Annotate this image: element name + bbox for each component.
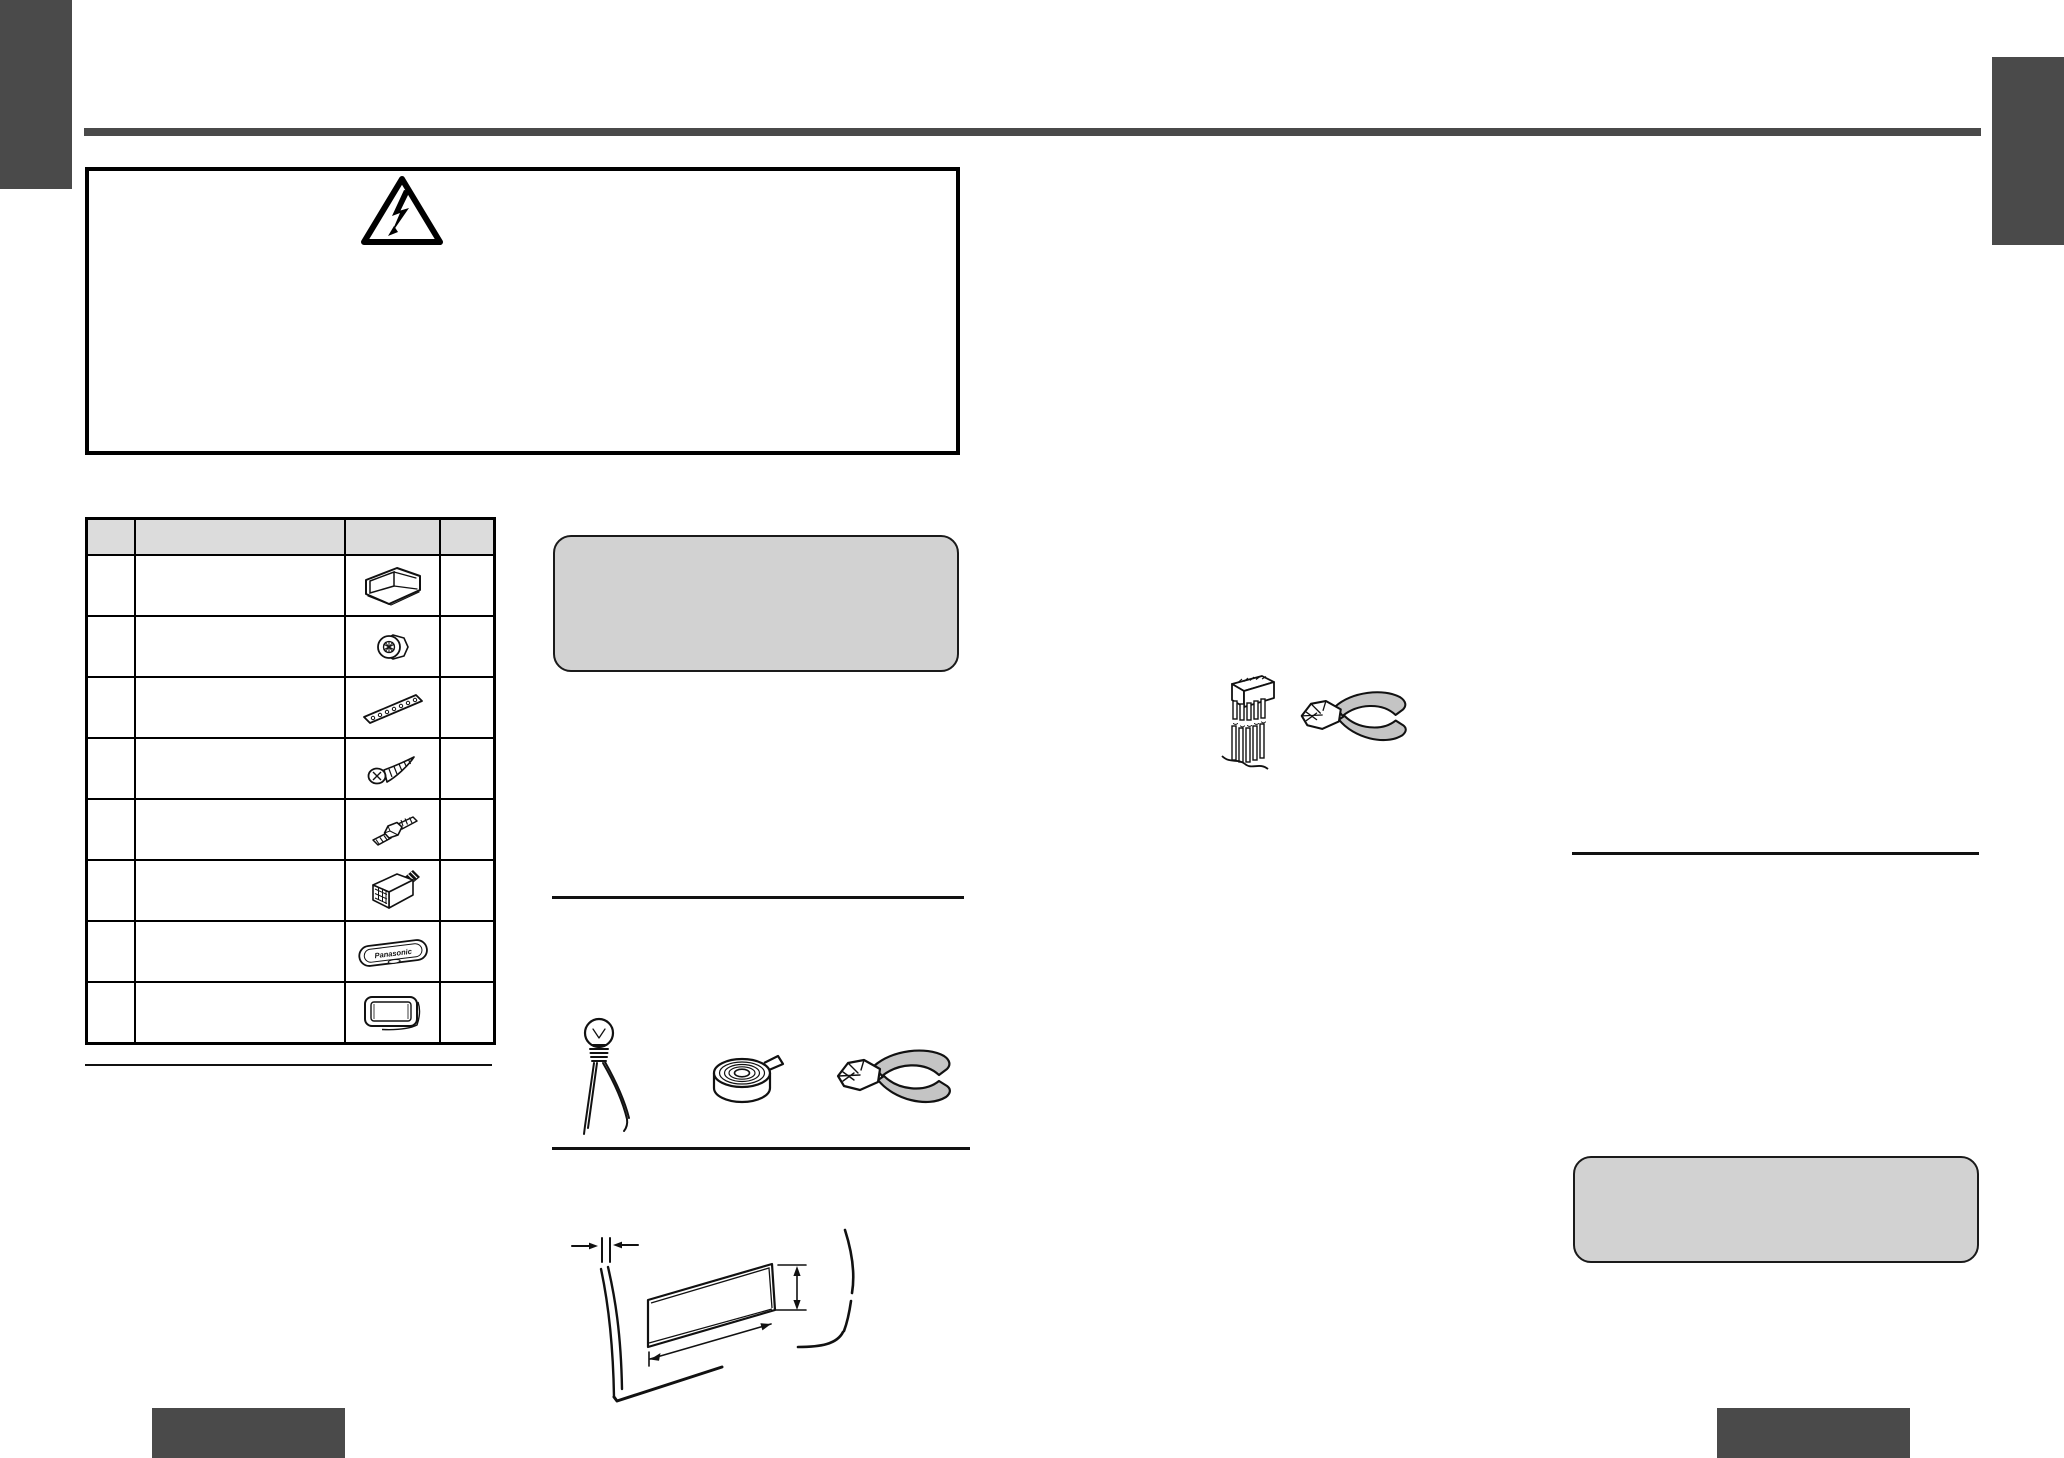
cell-diagram [345,555,440,616]
cell-qty [440,921,495,982]
cell-qty [440,799,495,860]
side-cutters-icon [834,1046,954,1112]
cell-number [87,738,136,799]
cell-qty [440,982,495,1044]
radio-opening [648,1264,775,1347]
remote-control-icon: Panasonic [355,934,431,970]
header-col-number [87,519,136,556]
cell-number [87,921,136,982]
power-connector-icon [361,867,425,915]
left-edge-tab [0,0,72,189]
mounting-collar-icon [361,565,425,607]
header-col-name [135,519,345,556]
hex-nut-icon [373,631,413,663]
tools-section-bottom-rule [552,1147,970,1150]
wire-cut-figure [1218,672,1418,784]
cell-name [135,982,345,1044]
cell-number [87,799,136,860]
cell-number [87,616,136,677]
cell-diagram [345,677,440,738]
header-col-qty [440,519,495,556]
cell-number [87,982,136,1044]
cell-qty [440,555,495,616]
bottom-left-page-tab [152,1408,345,1458]
cell-diagram [345,982,440,1044]
cell-qty [440,616,495,677]
tapping-screw-icon [365,751,421,787]
cell-name [135,677,345,738]
cell-qty [440,738,495,799]
cell-qty [440,860,495,921]
tools-section-top-rule [552,896,964,899]
cell-name [135,555,345,616]
cell-name [135,738,345,799]
note-panel-top [553,535,959,672]
note-panel-bottom [1573,1156,1979,1263]
right-edge-tab [1992,57,2064,245]
table-row: Panasonic [87,921,495,982]
trim-frame-icon [362,992,424,1034]
cell-number [87,860,136,921]
table-header-row [87,519,495,556]
high-voltage-icon [358,174,446,248]
test-lamp-icon [572,1016,644,1146]
bottom-right-page-tab [1717,1408,1910,1458]
insulating-tape-icon [706,1048,786,1110]
table-row [87,860,495,921]
cell-diagram [345,799,440,860]
table-row [87,738,495,799]
mounting-strap-icon [361,690,425,726]
table-row [87,982,495,1044]
table-row [87,799,495,860]
cell-diagram [345,616,440,677]
table-bottom-rule [85,1064,492,1066]
table-row [87,616,495,677]
cell-name [135,616,345,677]
caution-section-rule [1572,852,1979,855]
parts-table: Panasonic [85,517,496,1045]
cell-diagram: Panasonic [345,921,440,982]
thickness-dimension-arrow [572,1238,638,1262]
cell-number [87,677,136,738]
height-dimension-arrow [776,1265,806,1310]
cell-diagram [345,738,440,799]
header-col-diagram [345,519,440,556]
cell-number [87,555,136,616]
cell-name [135,860,345,921]
cell-name [135,799,345,860]
crimp-cutters-icon [1302,692,1406,740]
warning-panel [85,167,960,455]
mounting-bolt-icon [365,812,421,848]
cell-name [135,921,345,982]
manual-page: { "document": { "kind": "installation-ma… [0,0,2064,1458]
table-row [87,677,495,738]
dashboard-opening-diagram [565,1225,895,1447]
cut-connector-icon [1222,676,1274,769]
cell-diagram [345,860,440,921]
title-rule [84,128,1981,136]
table-row [87,555,495,616]
cell-qty [440,677,495,738]
